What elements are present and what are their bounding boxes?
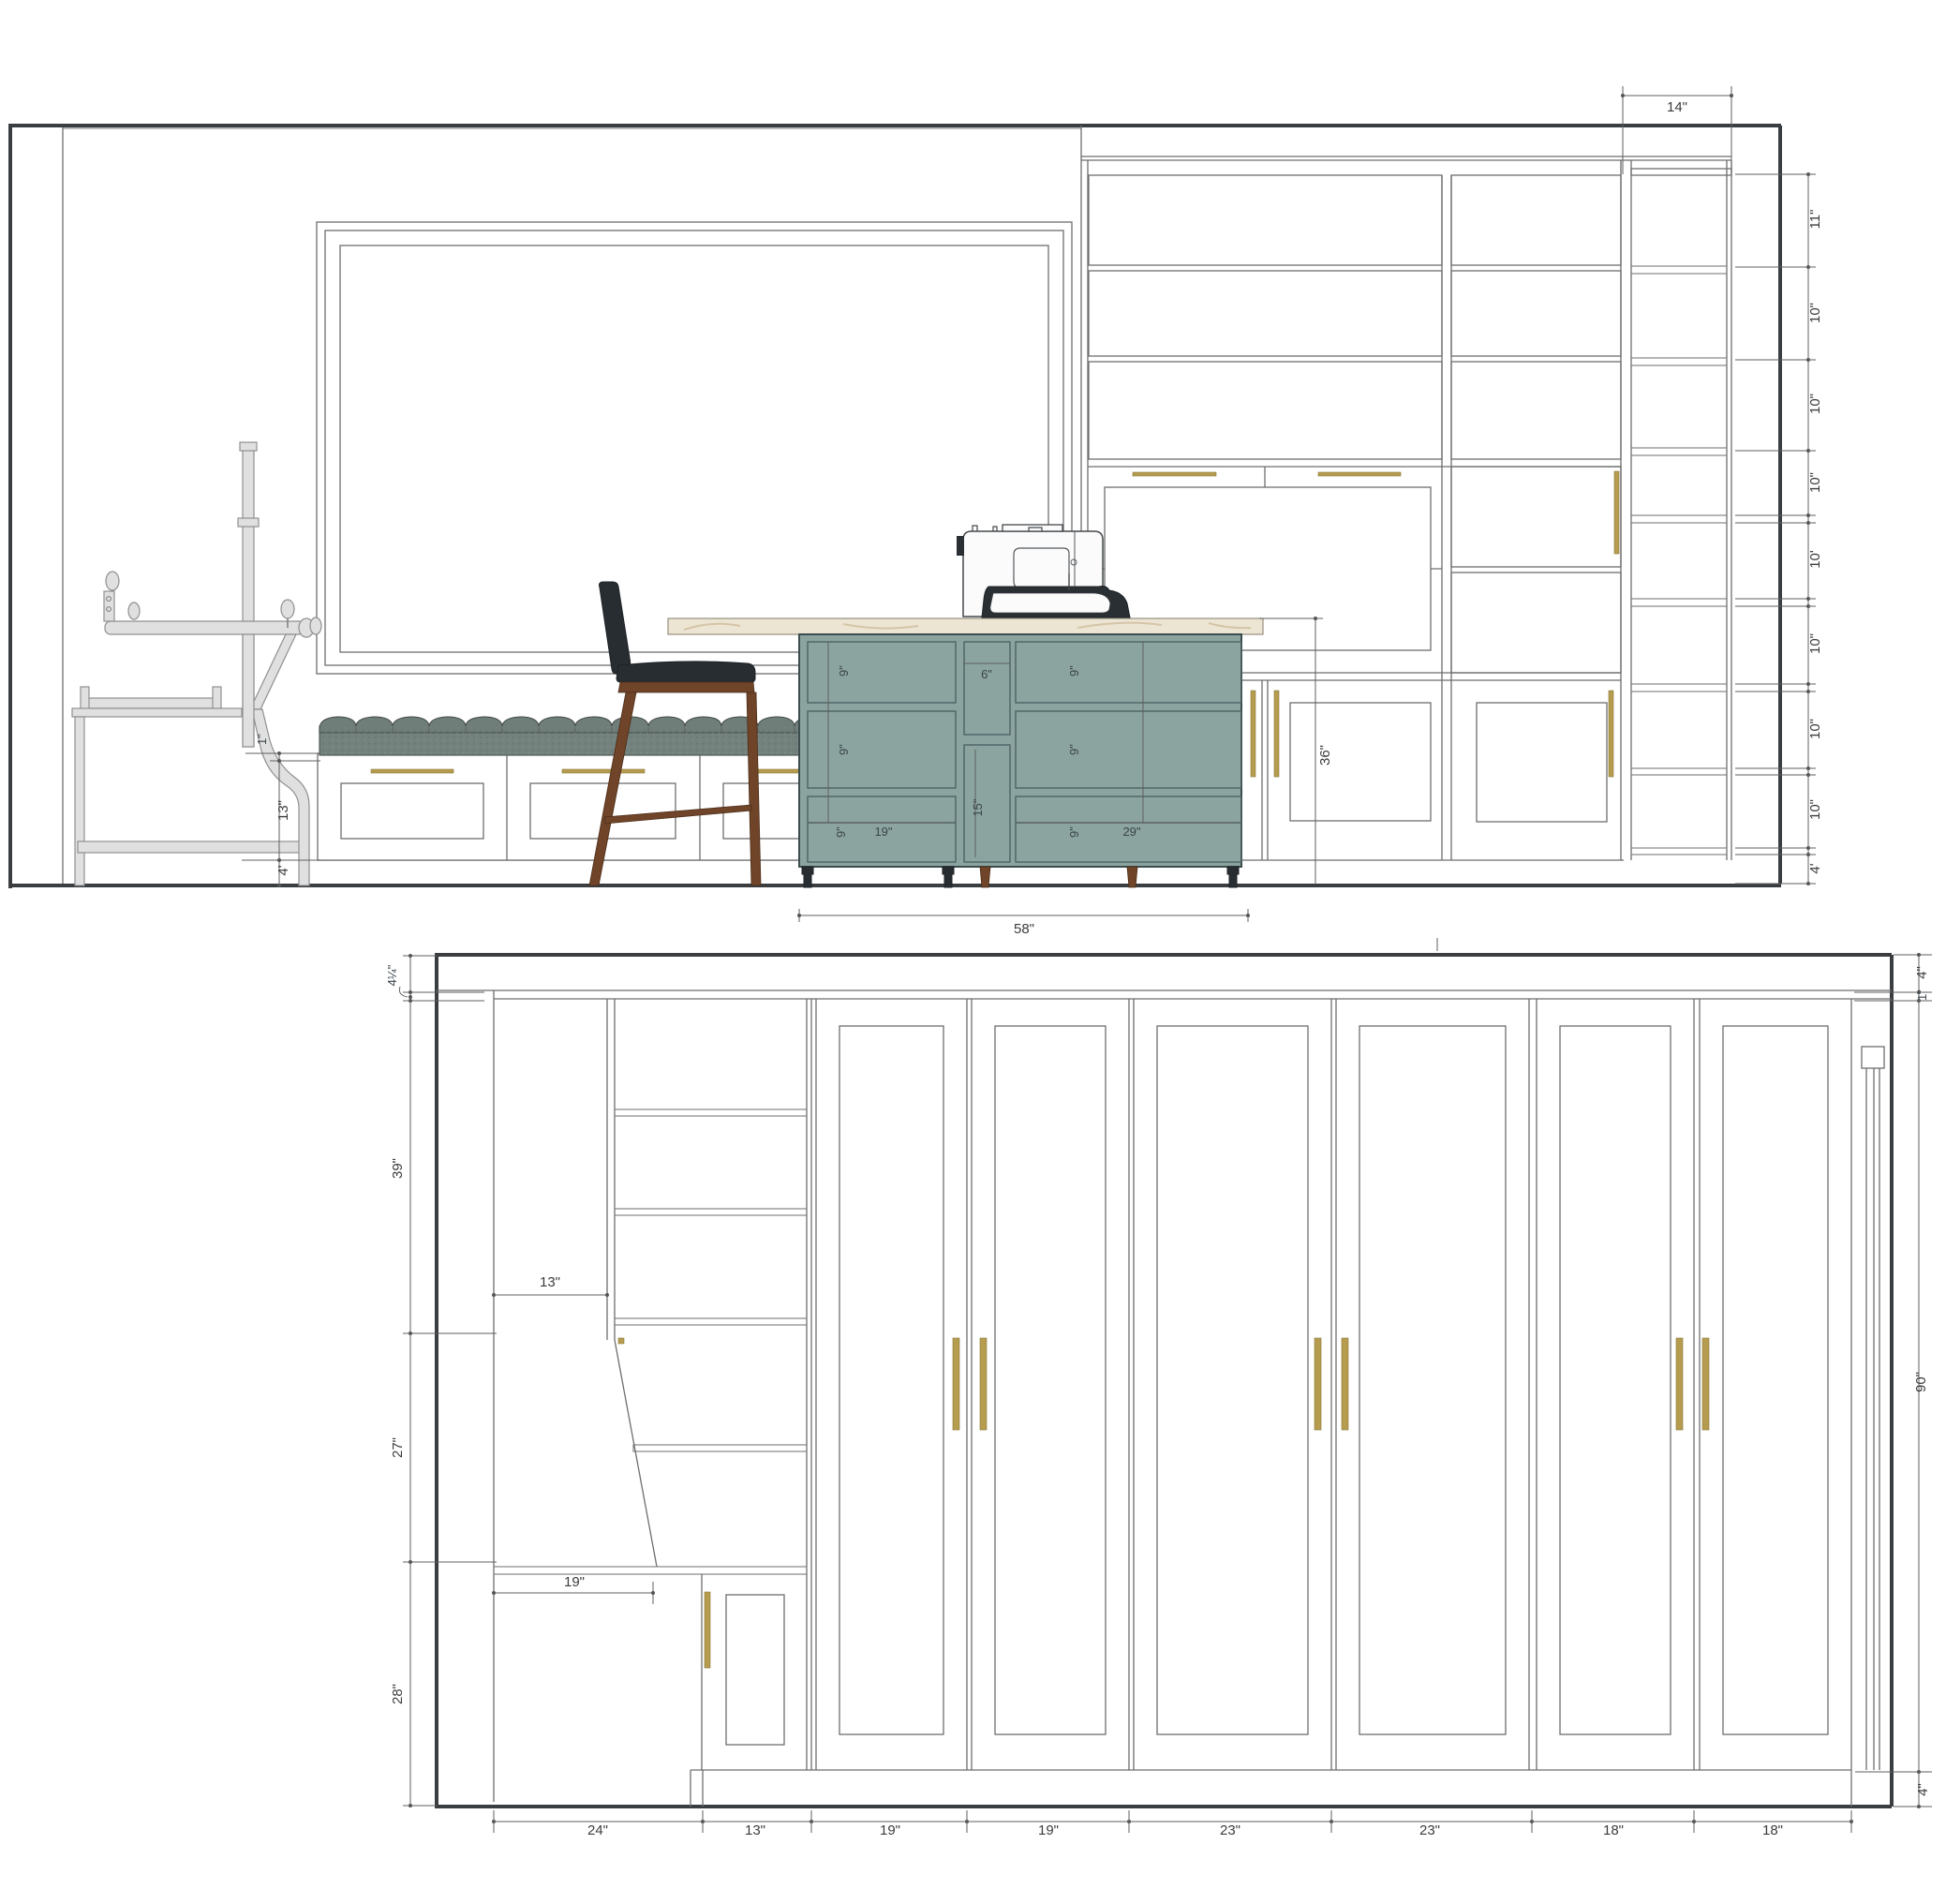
svg-text:28": 28" <box>390 1684 406 1704</box>
svg-text:39": 39" <box>390 1158 406 1179</box>
svg-text:13": 13" <box>745 1822 765 1838</box>
svg-text:10": 10" <box>1807 303 1823 323</box>
svg-text:4": 4" <box>1915 1783 1931 1796</box>
svg-text:19": 19" <box>1038 1822 1059 1838</box>
svg-text:29": 29" <box>1122 825 1140 839</box>
svg-text:4¼": 4¼" <box>385 964 399 986</box>
svg-text:9": 9" <box>837 744 851 755</box>
svg-text:10": 10" <box>1807 394 1823 414</box>
svg-text:27": 27" <box>390 1437 406 1458</box>
svg-text:10": 10" <box>1807 799 1823 820</box>
svg-text:1": 1" <box>255 734 269 745</box>
svg-text:13": 13" <box>275 800 291 821</box>
svg-text:18": 18" <box>1762 1822 1783 1838</box>
svg-text:14": 14" <box>1667 99 1687 115</box>
svg-text:36": 36" <box>1317 745 1333 766</box>
svg-text:23": 23" <box>1419 1822 1440 1838</box>
svg-text:19": 19" <box>880 1822 900 1838</box>
svg-text:9": 9" <box>1067 744 1081 755</box>
svg-text:10": 10" <box>1807 719 1823 739</box>
svg-text:19": 19" <box>564 1574 585 1590</box>
svg-text:9": 9" <box>837 665 851 677</box>
svg-text:24": 24" <box>587 1822 608 1838</box>
svg-text:18": 18" <box>1603 1822 1624 1838</box>
svg-text:4': 4' <box>1807 863 1823 873</box>
svg-text:15": 15" <box>971 798 985 816</box>
svg-text:90": 90" <box>1913 1372 1929 1392</box>
svg-text:4": 4" <box>1914 966 1930 979</box>
svg-text:10': 10' <box>1807 550 1823 569</box>
svg-text:19": 19" <box>874 825 892 839</box>
svg-text:9": 9" <box>1067 665 1081 677</box>
svg-text:10": 10" <box>1807 472 1823 493</box>
svg-text:58": 58" <box>1014 921 1034 937</box>
svg-text:10": 10" <box>1807 633 1823 654</box>
svg-text:13": 13" <box>540 1274 560 1290</box>
svg-text:6": 6" <box>981 667 992 681</box>
svg-text:1": 1" <box>1915 989 1929 1001</box>
svg-text:9": 9" <box>1067 826 1081 838</box>
svg-text:23": 23" <box>1220 1822 1240 1838</box>
svg-text:9": 9" <box>834 826 848 838</box>
svg-text:4': 4' <box>275 865 291 875</box>
svg-text:11": 11" <box>1807 210 1823 230</box>
